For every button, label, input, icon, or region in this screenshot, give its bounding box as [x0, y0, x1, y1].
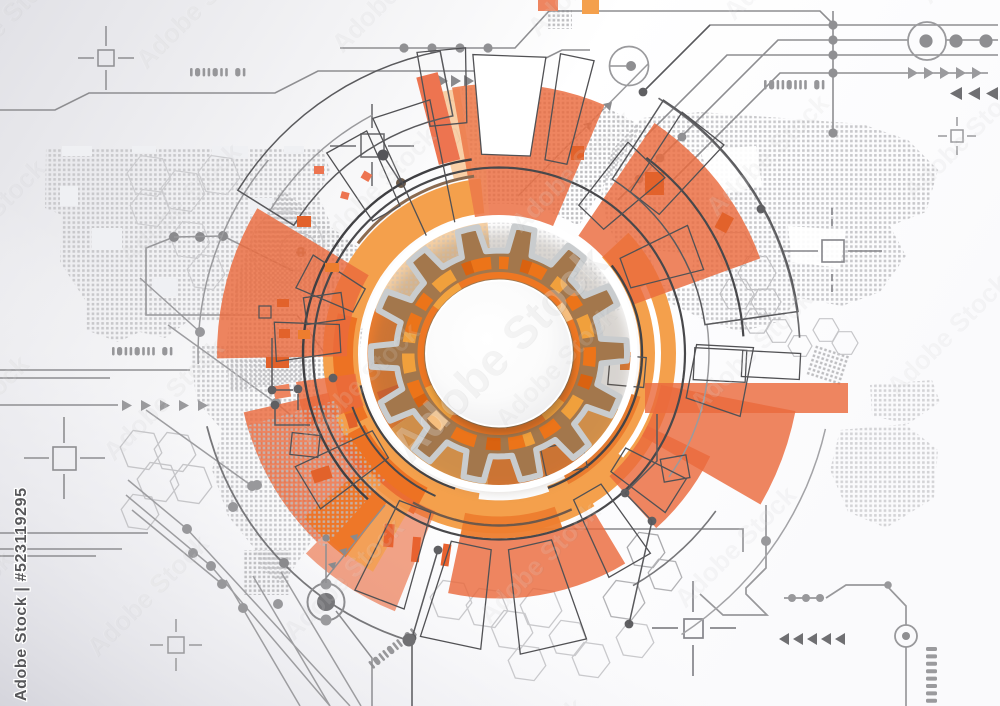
svg-text:Adobe Stock | #523119295: Adobe Stock | #523119295 [13, 487, 30, 701]
